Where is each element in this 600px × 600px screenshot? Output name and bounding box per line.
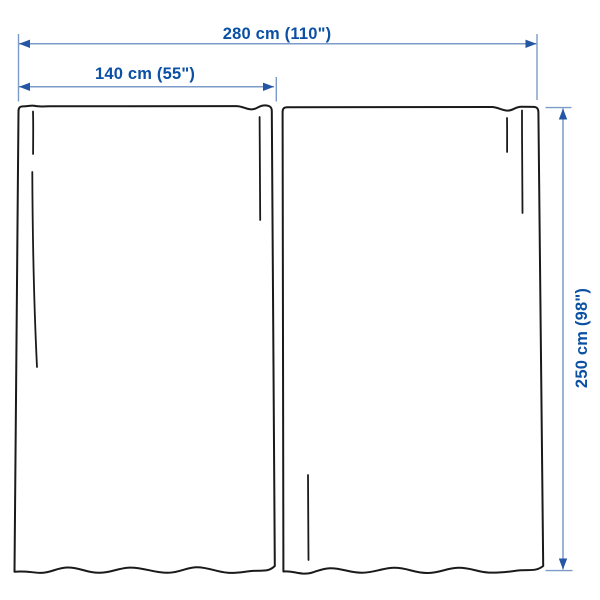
height-label: 250 cm (98") [574, 288, 591, 388]
dimension-height [546, 108, 573, 571]
arrowhead-left-icon [19, 40, 30, 48]
arrowhead-down-icon [559, 559, 567, 570]
curtain-fold-line [32, 172, 37, 367]
curtain-panel-left-outline [15, 105, 275, 573]
curtain-panel-right-outline [283, 107, 544, 574]
arrowhead-up-icon [559, 109, 567, 120]
curtain-fold-line [308, 475, 309, 560]
curtain-panel-left [15, 105, 275, 573]
curtain-fold-line [522, 111, 523, 214]
total-width-label: 280 cm (110") [223, 26, 332, 43]
arrowhead-left-icon [19, 83, 30, 91]
panel-width-label: 140 cm (55") [95, 66, 195, 83]
curtain-fold-line [260, 117, 261, 220]
arrowhead-right-icon [263, 83, 274, 91]
curtain-panel-right [283, 107, 544, 574]
arrowhead-right-icon [526, 40, 537, 48]
curtain-dimension-diagram: 280 cm (110") 140 cm (55") 250 cm (98") [0, 0, 600, 600]
diagram-line-art [0, 0, 600, 600]
